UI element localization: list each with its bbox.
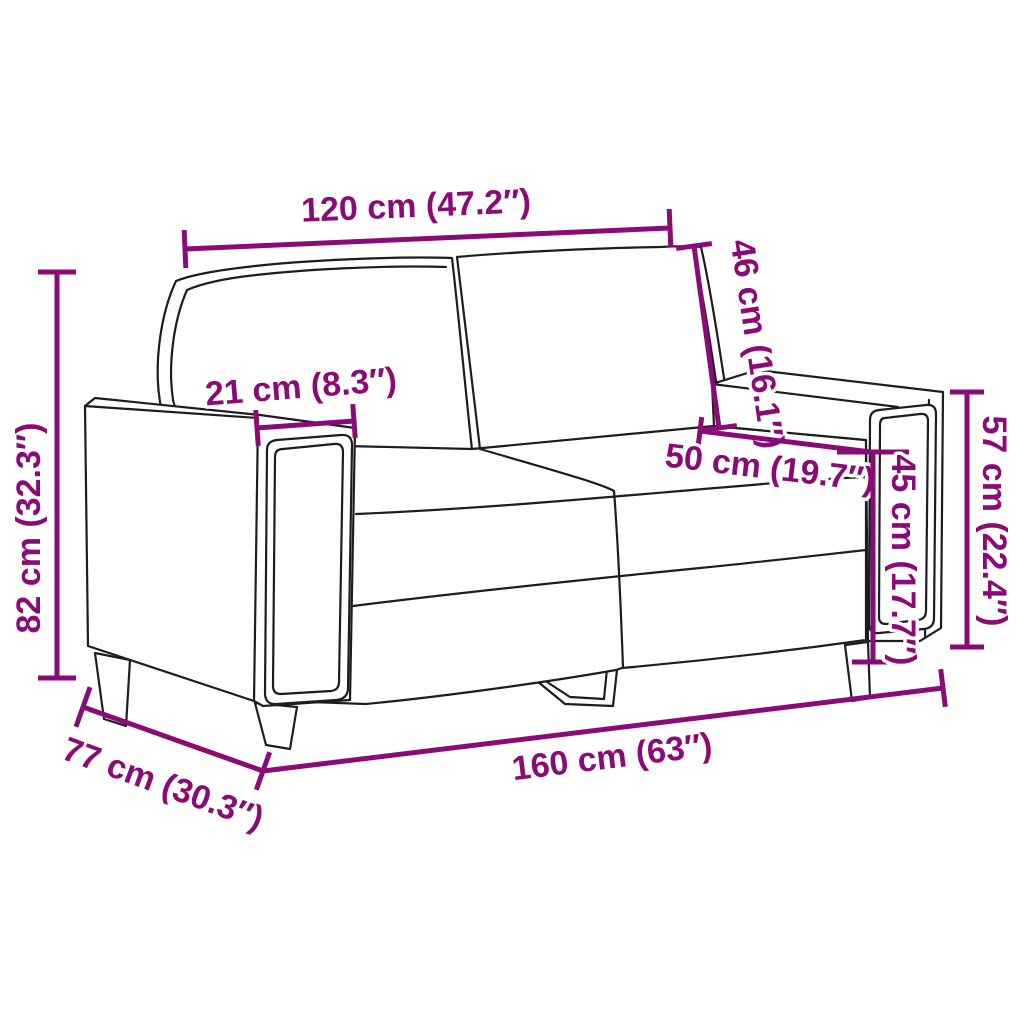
dimension-label-back-width: 120 cm (47.2″) — [300, 182, 531, 230]
sofa-line-drawing — [85, 246, 943, 749]
dimension-tick-armrest-width-end — [353, 404, 355, 438]
dimension-line-back-width — [185, 228, 670, 249]
dimension-tick-total-width-end — [941, 669, 946, 707]
inner-left-leg — [255, 703, 297, 749]
dimension-label-total-height: 82 cm (32.3″) — [10, 423, 48, 634]
dimension-tick-armrest-width-start — [256, 410, 259, 446]
right-back-cushion — [457, 246, 731, 449]
dimension-label-armrest-height: 57 cm (22.4″) — [975, 416, 1013, 627]
dimension-tick-back-width-start — [184, 230, 186, 268]
right-leg — [845, 642, 870, 701]
dimension-total-height: 82 cm (32.3″) — [10, 272, 76, 678]
diagram-canvas: 120 cm (47.2″)46 cm (16.1″)21 cm (8.3″)5… — [0, 0, 1024, 1024]
dimension-tick-back-width-end — [669, 209, 671, 247]
dimension-tick-back-height-start — [676, 244, 712, 249]
dimension-label-seat-height: 45 cm (17.7″) — [884, 455, 922, 666]
dimension-label-total-depth: 77 cm (30.3″) — [57, 730, 268, 838]
dimension-total-depth: 77 cm (30.3″) — [57, 687, 269, 838]
sofa-dimension-diagram: 120 cm (47.2″)46 cm (16.1″)21 cm (8.3″)5… — [0, 0, 1024, 1024]
dimension-armrest-height: 57 cm (22.4″) — [950, 392, 1013, 647]
